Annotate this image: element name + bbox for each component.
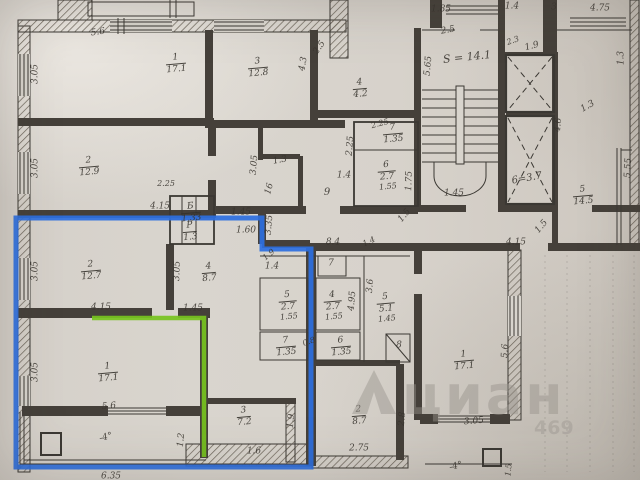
dim-label: 2.25	[157, 180, 175, 188]
dim-label: 4.15	[91, 304, 111, 313]
dim-label: 4.15	[150, 203, 170, 212]
dim-label: 2.75	[349, 445, 369, 454]
room-label: 37.2	[236, 406, 252, 428]
room-label: 117.1	[165, 53, 187, 76]
dim-label: 1.5	[534, 219, 550, 236]
room-label: 312.8	[247, 57, 269, 80]
room-label: 62.71.55	[377, 160, 397, 191]
dim-label: 1.45	[444, 190, 464, 199]
room-label: 71.35	[275, 336, 297, 359]
dim-label: 1.3	[580, 100, 597, 115]
dim-label: 1.9	[287, 413, 297, 428]
room-label: 71.35	[382, 123, 404, 146]
room-label: 28.7	[351, 405, 367, 427]
dim-label: 1.4	[505, 3, 519, 12]
dim-label: 3.05	[32, 64, 41, 84]
dim-label: 2.5	[312, 40, 328, 57]
dim-label: 1.85	[431, 6, 451, 15]
room-label: 61.35	[330, 336, 352, 359]
room-label: 55.11.45	[376, 292, 396, 323]
dim-label: 7	[328, 260, 334, 269]
dim-label: 8	[396, 342, 402, 351]
dim-label: 1.60	[236, 227, 256, 236]
dim-label: 3	[551, 4, 557, 13]
room-label: 52.71.55	[278, 290, 298, 321]
dim-label: 3.05	[250, 155, 261, 176]
labels-layer: 5.63.054.32.51.851.434.752.5S = 14.15.65…	[0, 0, 640, 480]
room-label: 42.71.55	[323, 290, 343, 321]
dim-label: 5.65	[424, 56, 435, 77]
room-label: 212.9	[78, 156, 100, 179]
dim-label: 1.9	[524, 41, 540, 53]
dim-label: 5.6	[90, 28, 105, 39]
room-label: 48.7	[201, 262, 217, 284]
dim-label: -4°	[98, 432, 113, 444]
dim-label: 8.4	[326, 239, 340, 248]
room-label: 514.5	[572, 185, 594, 208]
dim-label: 1.6	[247, 448, 261, 457]
dim-label: 3.05	[32, 261, 41, 281]
dim-label: 16	[264, 182, 276, 195]
dim-label: 5.6	[501, 344, 511, 359]
dim-label: 1.75	[405, 171, 415, 191]
dim-label: S = 14.1	[442, 49, 491, 65]
dim-label: 1.3	[272, 155, 288, 166]
dim-label: 1.4	[265, 263, 279, 272]
room-label: Р1.3	[182, 221, 198, 243]
dim-label: 3.35	[265, 215, 276, 236]
dim-label: 4.6	[554, 117, 564, 132]
dim-label: 4.95	[348, 291, 359, 312]
room-label: 212.7	[80, 260, 102, 283]
dim-label: 5.55	[624, 158, 634, 178]
dim-label: 3.05	[32, 362, 41, 382]
dim-label: 9	[324, 188, 330, 198]
dim-label: 4.75	[590, 5, 610, 14]
dim-label: 1.2	[177, 432, 187, 447]
dim-label: -4°	[448, 461, 463, 473]
dim-label: 3.6	[366, 278, 376, 293]
dim-label: 6.35	[101, 473, 121, 480]
room-label: 117.1	[453, 350, 475, 373]
dim-label: 2.25	[346, 136, 357, 157]
dim-label: 1.5	[397, 208, 413, 225]
dim-label: 3.05	[173, 261, 183, 281]
dim-label: 2.8	[398, 411, 408, 426]
dim-label: 6=3.7	[511, 171, 543, 186]
dim-label: 1.5	[504, 463, 513, 476]
dim-label: 4.15	[506, 239, 526, 248]
dim-label: 2.5	[440, 25, 456, 36]
room-label: 44.2	[352, 78, 368, 100]
dim-label: 4.3	[298, 56, 309, 72]
room-label: 117.1	[97, 362, 119, 385]
floor-plan-photo: 5.63.054.32.51.851.434.752.5S = 14.15.65…	[0, 0, 640, 480]
dim-label: 5.6	[101, 402, 116, 412]
dim-label: 1.4	[337, 172, 351, 181]
dim-label: 1.9	[262, 248, 277, 262]
dim-label: 1.4	[362, 236, 377, 249]
dim-label: 1.45	[231, 209, 251, 218]
dim-label: 3.05	[464, 417, 485, 428]
dim-label: 2.3	[506, 35, 521, 47]
dim-label: 1.3	[618, 51, 627, 65]
dim-label: 3.05	[32, 158, 41, 178]
dim-label: 1.45	[183, 305, 203, 314]
dim-label: 0.8	[302, 336, 317, 348]
